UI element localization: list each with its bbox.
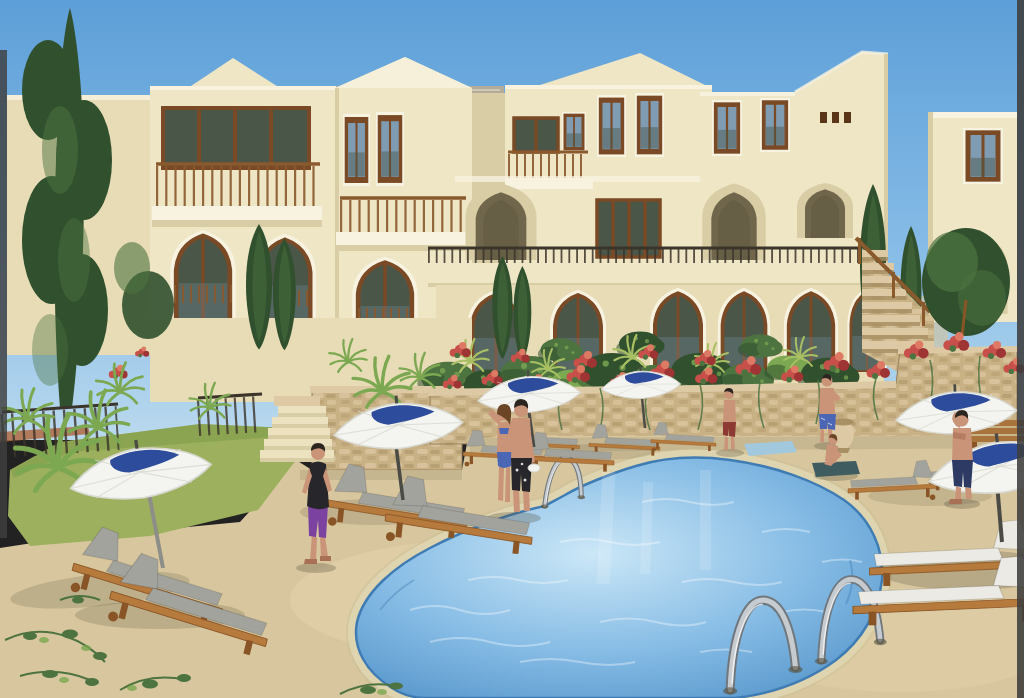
window <box>760 98 790 152</box>
arch-window <box>170 230 235 323</box>
window <box>597 95 626 157</box>
terrace-parapet <box>428 263 868 285</box>
window <box>343 114 370 186</box>
portico-arch <box>797 183 853 238</box>
left-edge-strip <box>0 50 7 538</box>
scene-canvas <box>0 0 1024 698</box>
window <box>963 128 1003 184</box>
window <box>376 112 404 186</box>
white-hat <box>528 464 540 472</box>
right-edge-strip <box>1017 0 1024 698</box>
round-tree <box>922 228 1010 336</box>
resort-rendering <box>0 0 1024 698</box>
window <box>712 100 742 156</box>
window <box>635 93 664 157</box>
window <box>562 112 586 152</box>
balcony-slab <box>152 206 322 220</box>
villa-balcony-left <box>150 58 336 356</box>
